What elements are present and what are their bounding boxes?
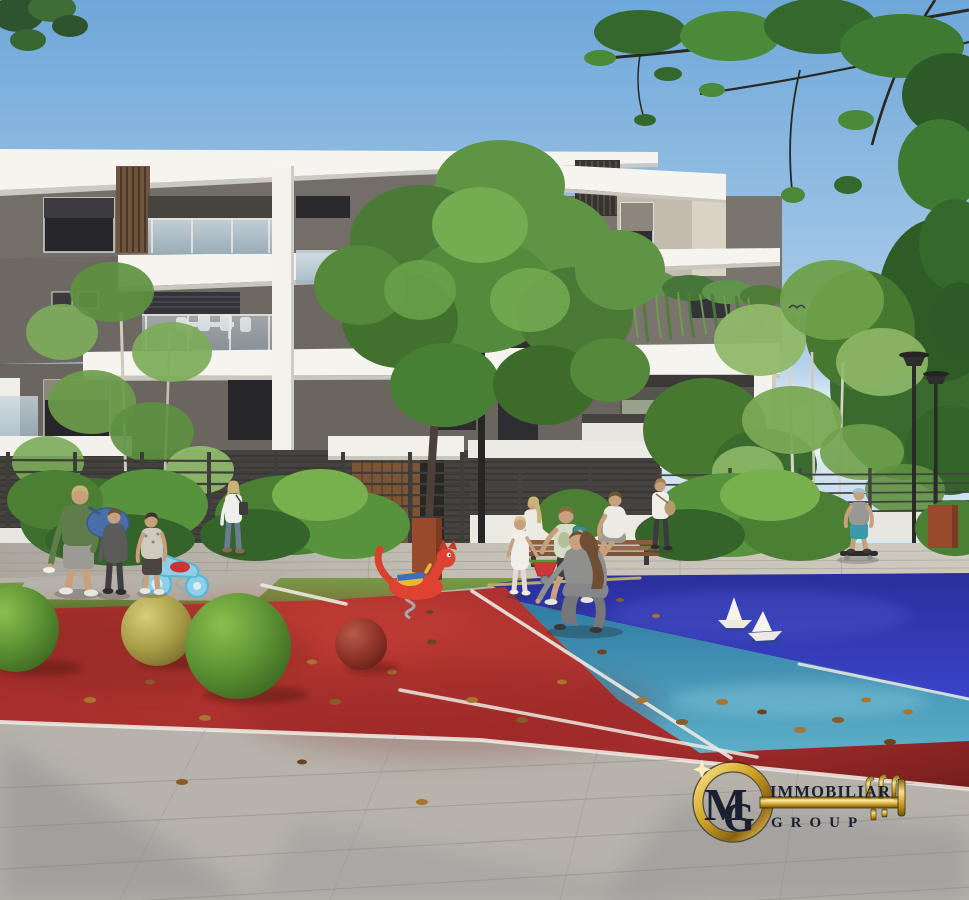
red-shadow-2 [240, 662, 660, 758]
glass-ground-left [0, 396, 38, 440]
shutter-top-left [44, 198, 114, 218]
logo-line2: GROUP [771, 815, 865, 831]
corten-planter-right-shade [952, 505, 958, 548]
balcony-recess [148, 196, 272, 220]
logo-monogram-g: G [723, 794, 755, 840]
shoulder-bag [239, 502, 248, 515]
glass-balustrade-top [148, 218, 272, 254]
scene-svg: M G IMMOBILIAR GROUP [0, 0, 969, 900]
canopy-entrance [328, 436, 464, 458]
tan-bag [665, 501, 676, 516]
court-teal-sheen [670, 682, 930, 718]
rendering-canvas: M G IMMOBILIAR GROUP [0, 0, 969, 900]
facade-pier [272, 166, 294, 462]
facade-pier-shade [291, 166, 294, 462]
ball-olive [121, 594, 193, 666]
roller-shutter-mid [144, 292, 240, 314]
canopy-shadow [328, 456, 464, 460]
skateboard [840, 551, 878, 556]
logo-key-tooth-2 [882, 809, 887, 817]
penthouse-shutter [621, 203, 653, 231]
logo-key-end-bar [898, 779, 905, 816]
window-top-mid [296, 196, 350, 218]
white-paper-bird [43, 567, 55, 573]
window-ground-2 [228, 380, 276, 440]
logo-key-tooth-1 [871, 809, 876, 820]
ball-green-big [185, 593, 291, 699]
logo-line1: IMMOBILIAR [770, 782, 891, 801]
ball-dark-red [335, 618, 387, 670]
